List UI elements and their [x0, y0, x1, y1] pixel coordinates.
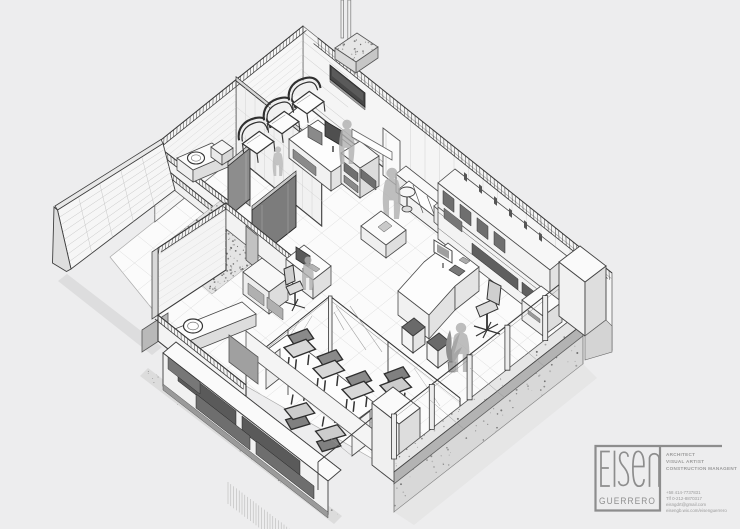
svg-text:ARCHITECT: ARCHITECT: [666, 452, 695, 457]
svg-text:eisngdrt@gmail.com: eisngdrt@gmail.com: [666, 502, 706, 507]
svg-text:eisengb.wix.com/eisenguerrero: eisengb.wix.com/eisenguerrero: [666, 508, 727, 513]
svg-text:CONSTRUCTION MANAGENT: CONSTRUCTION MANAGENT: [666, 466, 737, 471]
svg-text:VISUAL ARTIST: VISUAL ARTIST: [666, 459, 704, 464]
svg-text:+58 414-7737831: +58 414-7737831: [666, 490, 701, 495]
svg-text:Tlf 0-212-8870317: Tlf 0-212-8870317: [666, 496, 702, 501]
svg-text:GUERRERO: GUERRERO: [599, 496, 656, 506]
